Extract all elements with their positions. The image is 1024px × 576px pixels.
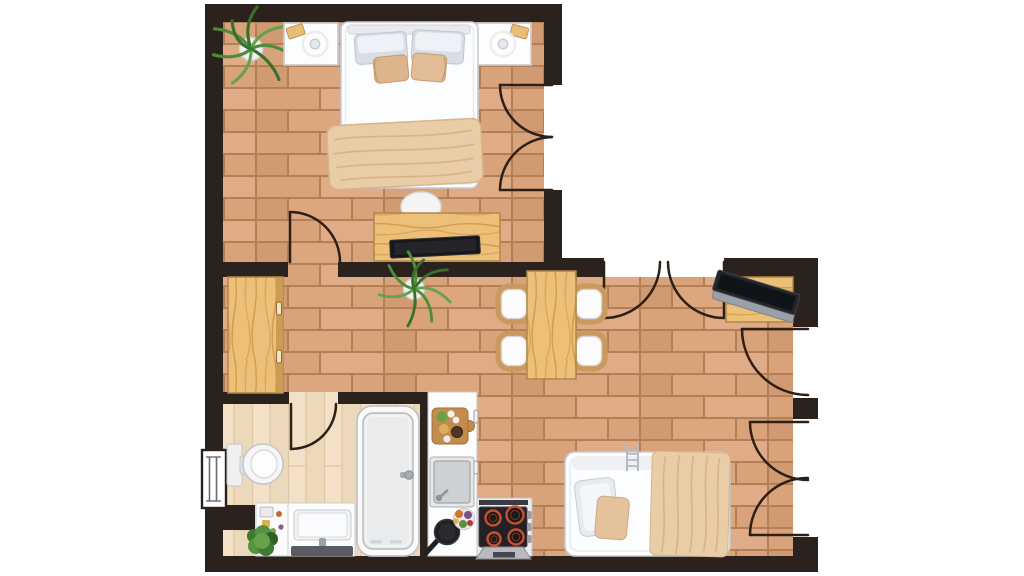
- burner-2: [507, 507, 524, 524]
- basin-faucet-icon: [319, 538, 326, 547]
- bed-blanket: [327, 118, 484, 190]
- sofa-cushion: [594, 496, 630, 541]
- bathtub: [357, 406, 419, 556]
- wall-notch-bathroom: [223, 505, 255, 530]
- wall-right-mid: [793, 398, 818, 419]
- wall-bathroom-north-right: [338, 392, 428, 404]
- wardrobe-handle-bottom: [277, 350, 282, 363]
- sofa-throw-blanket: [650, 451, 731, 557]
- burner-1: [486, 511, 501, 526]
- stove-knob-3: [527, 535, 532, 543]
- wall-bedroom-south-left: [205, 262, 288, 277]
- floor-plan: [0, 0, 1024, 576]
- wall-bathroom-kitchen: [420, 392, 428, 556]
- wall-bathroom-north-left: [205, 392, 289, 404]
- burner-4: [509, 530, 524, 545]
- burner-3: [488, 533, 501, 546]
- counter-handle-top: [474, 410, 478, 423]
- bathroom-window: [202, 450, 226, 508]
- sofa-bed: [565, 443, 730, 557]
- stove-knob-2: [527, 523, 532, 531]
- cutting-board-icon: [432, 408, 475, 444]
- bed-cushion-left: [373, 54, 410, 83]
- table-lamp-right-icon: [490, 31, 517, 58]
- stove-knob-1: [527, 511, 532, 519]
- sink-faucet-icon: [436, 495, 442, 501]
- vegetable-bowl-icon: [453, 509, 474, 530]
- opening-living-north: [604, 258, 724, 277]
- counter-handle-bottom: [474, 461, 478, 474]
- hallway-floor: [223, 262, 793, 392]
- bed-cushion-right: [411, 53, 447, 83]
- floor-plan-drawing: [0, 0, 1024, 576]
- wardrobe: [228, 277, 283, 393]
- dining-table: [527, 271, 576, 379]
- double-bed: [327, 22, 484, 190]
- wall-right-lower: [793, 537, 818, 572]
- wall-right-upper: [793, 258, 818, 327]
- wardrobe-handle-top: [277, 302, 282, 315]
- vanity-sink: [288, 503, 355, 556]
- toilet-icon: [227, 444, 283, 486]
- bath-mat: [291, 546, 353, 556]
- kitchen-sink: [430, 457, 474, 507]
- stove: [476, 498, 532, 559]
- table-lamp-left-icon: [302, 31, 329, 58]
- opening-entry-east: [793, 327, 818, 398]
